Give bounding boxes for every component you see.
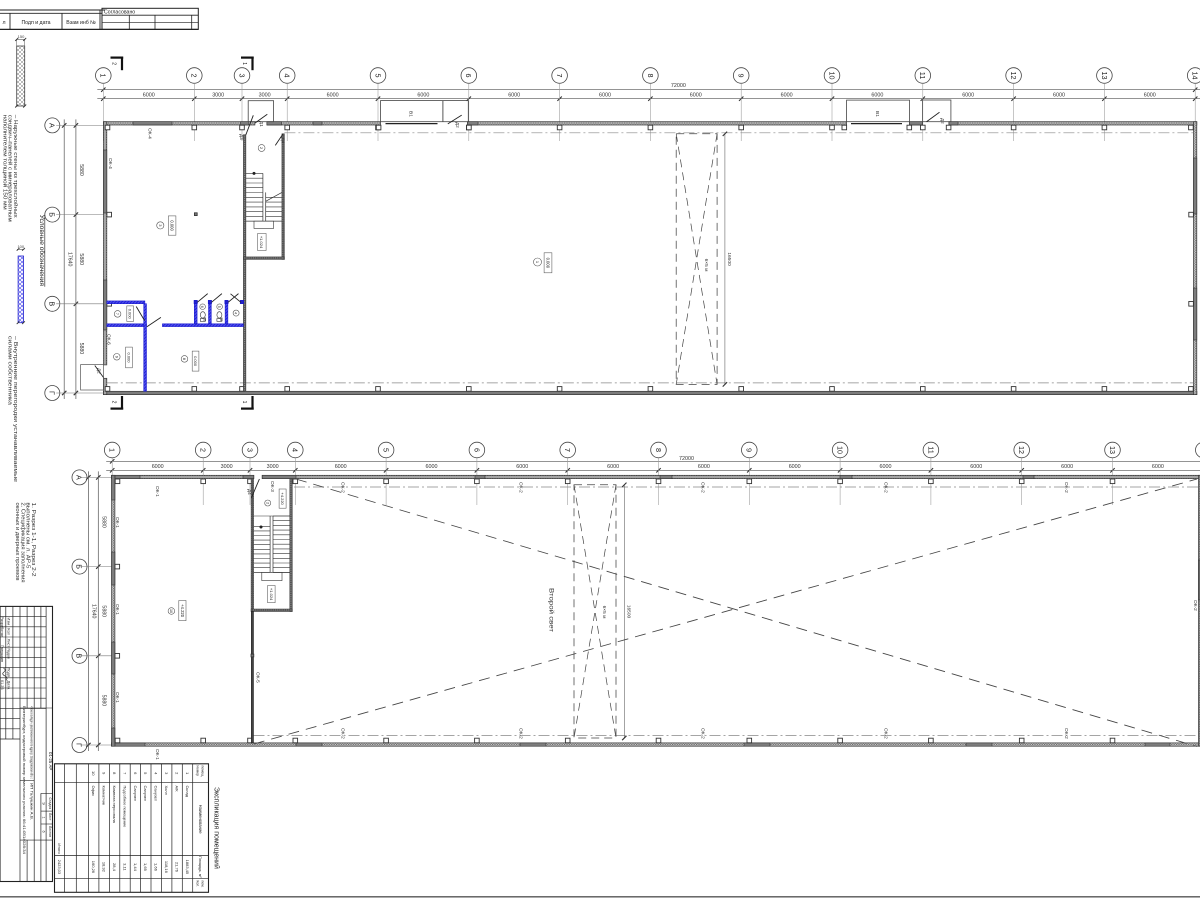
svg-text:Склад: Склад — [185, 786, 190, 798]
svg-text:Санузел: Санузел — [143, 786, 148, 802]
svg-text:Санузел: Санузел — [133, 786, 138, 802]
svg-text:2: 2 — [111, 401, 117, 404]
svg-text:16500: 16500 — [726, 252, 732, 266]
svg-text:6000: 6000 — [880, 464, 892, 470]
svg-text:1: 1 — [108, 448, 117, 452]
svg-text:Екатеринбург, кадастровый номе: Екатеринбург, кадастровый номер земельно… — [22, 706, 26, 854]
svg-text:ОК-2: ОК-2 — [1192, 600, 1198, 611]
svg-text:помещ.: помещ. — [201, 766, 205, 778]
svg-text:Подсобное помещение: Подсобное помещение — [122, 786, 127, 829]
svg-text:6: 6 — [200, 306, 204, 308]
svg-text:1,69: 1,69 — [143, 863, 148, 872]
svg-text:5880: 5880 — [101, 695, 107, 707]
svg-text:В1: В1 — [408, 111, 414, 117]
svg-text:пом.: пом. — [201, 881, 205, 888]
svg-text:6000: 6000 — [690, 92, 702, 98]
svg-text:3,11: 3,11 — [122, 863, 127, 871]
svg-text:9: 9 — [737, 74, 746, 78]
svg-text:3000: 3000 — [267, 464, 279, 470]
svg-text:Стадия: Стадия — [48, 798, 52, 810]
svg-text:ОК-2: ОК-2 — [1063, 482, 1069, 493]
svg-text:7: 7 — [555, 74, 564, 78]
svg-text:6000: 6000 — [599, 92, 611, 98]
svg-text:10: 10 — [836, 446, 845, 454]
svg-text:Г: Г — [48, 391, 57, 395]
svg-text:ОК-1: ОК-1 — [154, 749, 160, 760]
svg-text:6: 6 — [472, 448, 481, 452]
svg-text:6000: 6000 — [1053, 92, 1065, 98]
svg-text:Подп: Подп — [7, 668, 12, 678]
svg-text:160,26: 160,26 — [91, 861, 96, 874]
svg-text:А: А — [48, 123, 57, 128]
svg-text:Галушкин: Галушкин — [0, 645, 4, 662]
svg-text:6000: 6000 — [426, 464, 438, 470]
svg-text:СВ: СВ — [219, 317, 223, 321]
svg-text:6000: 6000 — [417, 92, 429, 98]
svg-text:1: 1 — [241, 62, 247, 65]
svg-text:6000: 6000 — [508, 92, 520, 98]
svg-text:Комнатчик: Комнатчик — [102, 786, 107, 806]
svg-text:10: 10 — [169, 609, 173, 613]
svg-text:3000: 3000 — [212, 92, 224, 98]
svg-text:ОК-1: ОК-1 — [114, 604, 120, 615]
svg-text:13: 13 — [1100, 72, 1109, 80]
svg-text:Холл: Холл — [164, 786, 169, 796]
svg-text:Д1: Д1 — [259, 121, 264, 127]
svg-text:л: л — [2, 20, 5, 26]
svg-text:5880: 5880 — [78, 343, 84, 355]
svg-text:ОК-2: ОК-2 — [699, 728, 705, 739]
svg-text:Д3: Д3 — [239, 134, 244, 140]
svg-text:3000: 3000 — [259, 92, 271, 98]
svg-text:6000: 6000 — [962, 92, 974, 98]
svg-text:6000: 6000 — [335, 464, 347, 470]
svg-text:7: 7 — [563, 448, 572, 452]
svg-text:6000: 6000 — [1061, 464, 1073, 470]
svg-text:ОК-4: ОК-4 — [107, 158, 113, 169]
svg-text:Офис: Офис — [91, 786, 96, 797]
svg-text:14: 14 — [1191, 72, 1200, 80]
svg-text:6000: 6000 — [871, 92, 883, 98]
svg-text:0.000: 0.000 — [193, 356, 198, 367]
svg-text:150: 150 — [18, 34, 25, 39]
svg-text:Наименование: Наименование — [198, 805, 203, 835]
svg-text:3: 3 — [245, 448, 254, 452]
svg-text:6000: 6000 — [143, 92, 155, 98]
svg-text:1: 1 — [42, 817, 46, 819]
svg-text:17640: 17640 — [67, 252, 73, 267]
svg-text:ОК-2: ОК-2 — [518, 728, 524, 739]
svg-text:Кол: Кол — [7, 628, 12, 635]
svg-text:6000: 6000 — [516, 464, 528, 470]
svg-text:6000: 6000 — [1152, 464, 1164, 470]
svg-text:Согласовано: Согласовано — [104, 10, 135, 16]
svg-text:72000: 72000 — [679, 456, 694, 462]
svg-text:3000: 3000 — [221, 464, 233, 470]
svg-text:А/К: А/К — [175, 786, 180, 793]
svg-text:6000: 6000 — [1144, 92, 1156, 98]
svg-text:Номер: Номер — [196, 766, 200, 777]
svg-text:8: 8 — [646, 74, 655, 78]
svg-text:1: 1 — [99, 74, 108, 78]
svg-text:28,4: 28,4 — [112, 863, 117, 872]
svg-text:ОК-2: ОК-2 — [882, 482, 888, 493]
svg-text:0.000: 0.000 — [126, 352, 131, 363]
svg-text:Б: Б — [48, 212, 57, 217]
svg-text:12: 12 — [1017, 446, 1026, 454]
svg-text:Э: Э — [42, 802, 46, 805]
svg-text:Экспликация помещений: Экспликация помещений — [213, 787, 221, 869]
svg-text:13: 13 — [1108, 446, 1117, 454]
svg-text:01.25: 01.25 — [0, 680, 4, 690]
svg-text:5880: 5880 — [101, 605, 107, 617]
svg-text:ОК-2: ОК-2 — [882, 728, 888, 739]
svg-text:2: 2 — [265, 502, 269, 504]
svg-text:6000: 6000 — [781, 92, 793, 98]
svg-text:12: 12 — [1009, 72, 1018, 80]
svg-text:9: 9 — [745, 448, 754, 452]
svg-text:6×5 м: 6×5 м — [601, 606, 607, 619]
svg-text:Кол.: Кол. — [196, 881, 200, 888]
svg-text:ОК-3: ОК-3 — [269, 481, 275, 492]
svg-text:Подп и дата: Подп и дата — [21, 20, 50, 26]
svg-text:4: 4 — [234, 312, 238, 314]
svg-text:21,76: 21,76 — [175, 862, 180, 873]
svg-text:ОК-6: ОК-6 — [106, 334, 112, 345]
svg-text:Д4: Д4 — [281, 138, 286, 144]
svg-text:Д2: Д2 — [940, 118, 945, 124]
svg-text:ОК-2: ОК-2 — [699, 482, 705, 493]
svg-text:6000: 6000 — [327, 92, 339, 98]
svg-text:2423,03: 2423,03 — [57, 860, 62, 875]
svg-text:ОК-2: ОК-2 — [339, 482, 345, 493]
svg-text:ИП Галушкин А.В.: ИП Галушкин А.В. — [29, 783, 34, 820]
svg-text:ОК-1: ОК-1 — [114, 692, 120, 703]
svg-text:6000: 6000 — [152, 464, 164, 470]
svg-text:Санузел: Санузел — [154, 786, 159, 802]
svg-text:СВ: СВ — [202, 317, 206, 321]
svg-text:В: В — [48, 301, 57, 306]
svg-text:10: 10 — [91, 771, 96, 776]
svg-text:ОК-2: ОК-2 — [339, 728, 345, 739]
svg-text:ОК-4: ОК-4 — [147, 128, 153, 139]
svg-text:5880: 5880 — [101, 516, 107, 528]
svg-text:10: 10 — [827, 72, 836, 80]
svg-text:Взам инб №: Взам инб № — [66, 20, 96, 26]
svg-text:0.000: 0.000 — [128, 309, 133, 320]
svg-text:+1.024: +1.024 — [259, 236, 264, 249]
svg-text:1883,45: 1883,45 — [185, 860, 190, 875]
svg-text:Комната персонала: Комната персонала — [112, 786, 117, 824]
svg-text:2: 2 — [199, 448, 208, 452]
svg-text:Листов: Листов — [48, 826, 52, 837]
svg-text:5880: 5880 — [78, 164, 84, 176]
svg-text:+4.220: +4.220 — [280, 492, 285, 505]
svg-text:Д2: Д2 — [455, 122, 460, 128]
svg-text:8: 8 — [654, 448, 663, 452]
svg-text:5: 5 — [217, 306, 221, 308]
svg-text:17640: 17640 — [91, 604, 97, 619]
svg-text:18,92: 18,92 — [102, 862, 107, 873]
svg-text:Дата: Дата — [7, 681, 12, 691]
svg-text:6000: 6000 — [970, 464, 982, 470]
svg-text:6: 6 — [42, 831, 46, 833]
svg-text:5: 5 — [373, 74, 382, 78]
svg-text:оконных и дверных проемов: оконных и дверных проемов — [14, 503, 20, 581]
svg-text:Д4: Д4 — [247, 489, 252, 495]
svg-text:1,66: 1,66 — [154, 863, 159, 872]
svg-text:В1: В1 — [874, 111, 880, 117]
svg-text:6000: 6000 — [698, 464, 710, 470]
svg-text:Д2: Д2 — [97, 368, 102, 374]
svg-text:наполнителем толщиной 150 мм: наполнителем толщиной 150 мм — [1, 115, 8, 210]
svg-text:6×5 м: 6×5 м — [703, 259, 709, 272]
svg-text:Изм: Изм — [7, 618, 12, 626]
svg-text:1,44: 1,44 — [133, 863, 138, 872]
svg-text:1: 1 — [241, 401, 247, 404]
svg-text:Лист: Лист — [48, 813, 52, 821]
svg-text:№док: №док — [7, 648, 12, 659]
svg-text:2: 2 — [190, 74, 199, 78]
svg-text:+1.024: +1.024 — [269, 588, 274, 601]
svg-text:ОК-2: ОК-2 — [518, 482, 524, 493]
svg-text:01-25 АР: 01-25 АР — [48, 752, 53, 770]
svg-text:2: 2 — [111, 62, 117, 65]
svg-text:6: 6 — [464, 74, 473, 78]
svg-text:5: 5 — [382, 448, 391, 452]
svg-text:3: 3 — [237, 74, 246, 78]
svg-text:0.000: 0.000 — [170, 220, 175, 231]
svg-text:5880: 5880 — [78, 253, 84, 265]
svg-text:+4.220: +4.220 — [180, 604, 185, 618]
svg-text:6000: 6000 — [789, 464, 801, 470]
svg-text:ОК-1: ОК-1 — [114, 517, 120, 528]
svg-text:11: 11 — [918, 72, 927, 79]
svg-text:«Эскиз склада», расположенного: «Эскиз склада», расположенного по адресу… — [29, 706, 33, 779]
svg-text:Итого: Итого — [57, 843, 62, 854]
svg-text:Площадь, м²: Площадь, м² — [198, 856, 202, 878]
svg-text:16500: 16500 — [625, 605, 631, 619]
svg-text:ОК-1: ОК-1 — [154, 486, 160, 497]
svg-text:118,16: 118,16 — [164, 861, 169, 874]
svg-text:Разработал: Разработал — [0, 617, 4, 638]
svg-text:ОК-2: ОК-2 — [1063, 728, 1069, 739]
svg-text:Второй свет: Второй свет — [548, 588, 556, 632]
svg-text:силами собственника: силами собственника — [7, 336, 13, 405]
svg-text:4: 4 — [291, 448, 300, 452]
svg-text:Лист: Лист — [7, 639, 12, 648]
svg-text:ОК-5: ОК-5 — [255, 672, 261, 683]
svg-text:72000: 72000 — [671, 83, 686, 89]
svg-text:11: 11 — [926, 446, 935, 453]
svg-text:4: 4 — [283, 74, 292, 78]
svg-text:0.000: 0.000 — [545, 258, 550, 269]
svg-text:6000: 6000 — [607, 464, 619, 470]
